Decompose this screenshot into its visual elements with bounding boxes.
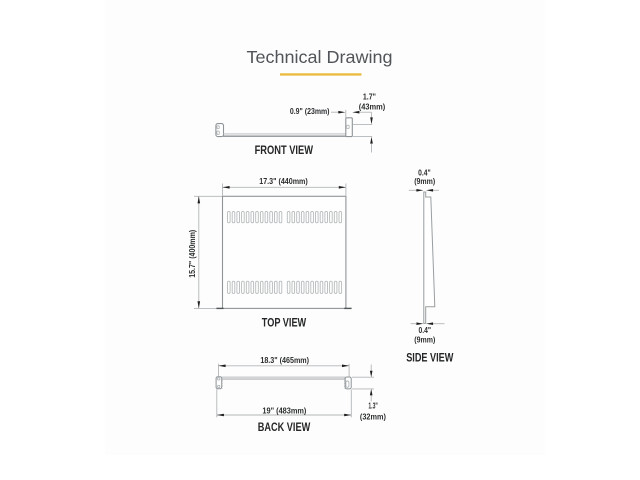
svg-text:0.9" (23mm): 0.9" (23mm) xyxy=(290,106,330,116)
svg-text:(9mm): (9mm) xyxy=(414,334,435,344)
svg-text:SIDE VIEW: SIDE VIEW xyxy=(406,351,454,365)
svg-text:19" (483mm): 19" (483mm) xyxy=(262,405,306,415)
svg-text:BACK VIEW: BACK VIEW xyxy=(258,420,311,434)
svg-text:FRONT VIEW: FRONT VIEW xyxy=(255,143,314,157)
svg-text:0.4": 0.4" xyxy=(419,325,432,335)
svg-text:(9mm): (9mm) xyxy=(414,176,435,186)
svg-text:Technical Drawing: Technical Drawing xyxy=(247,47,393,67)
svg-text:1.7": 1.7" xyxy=(363,91,376,101)
svg-text:17.3" (440mm): 17.3" (440mm) xyxy=(259,176,308,186)
svg-text:18.3" (465mm): 18.3" (465mm) xyxy=(260,355,309,365)
svg-text:1.3": 1.3" xyxy=(368,401,378,411)
svg-text:TOP VIEW: TOP VIEW xyxy=(262,316,307,330)
svg-text:15.7" (400mm): 15.7" (400mm) xyxy=(187,230,197,278)
svg-text:(43mm): (43mm) xyxy=(359,102,386,112)
svg-text:(32mm): (32mm) xyxy=(360,411,386,421)
